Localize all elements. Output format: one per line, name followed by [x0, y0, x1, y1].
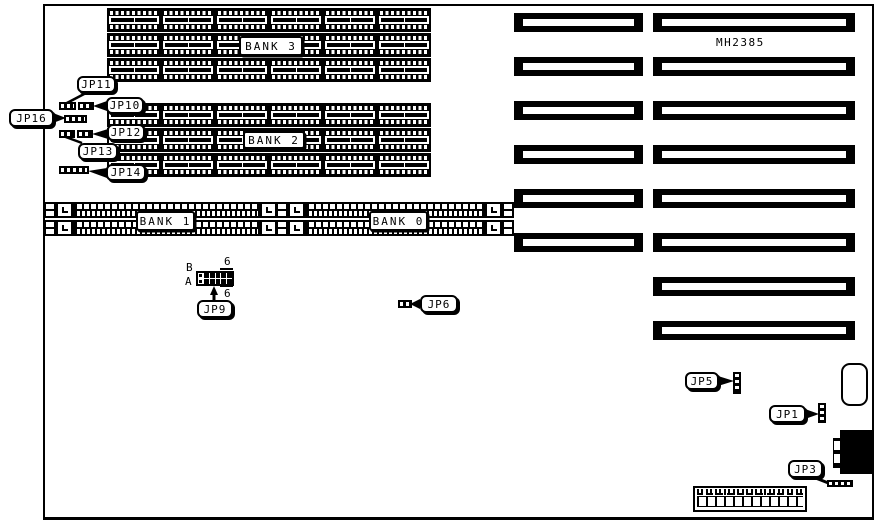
- jp5-jumper-pins: [733, 372, 741, 394]
- jp9-row-a-label: A: [185, 276, 192, 287]
- jp12-callout: JP12: [107, 124, 145, 141]
- bank2-label: BANK 2: [243, 131, 305, 149]
- jp5-callout: JP5: [685, 372, 719, 390]
- jp16-callout: JP16: [9, 109, 54, 127]
- jp11-callout: JP11: [77, 76, 116, 93]
- jp9-pin6-top-label: 6: [224, 256, 231, 267]
- bank1-label: BANK 1: [136, 211, 195, 231]
- jp14-callout: JP14: [106, 164, 146, 181]
- din-notch: [834, 454, 840, 463]
- bank0-label: BANK 0: [369, 211, 428, 231]
- jp11-jumper-pins: [59, 102, 76, 110]
- jp13-jumper-pins: [59, 130, 75, 138]
- jp6-callout: JP6: [420, 295, 458, 313]
- jp9-pin-header: [196, 271, 234, 286]
- jp3-callout: JP3: [788, 460, 823, 478]
- jp14-jumper-pins: [59, 166, 89, 174]
- jp16-jumper-pins: [64, 115, 87, 123]
- jp1-jumper-pins: [818, 403, 826, 423]
- jp3-jumper-pins: [827, 480, 853, 487]
- din-notch: [834, 441, 840, 450]
- jp10-jumper-pins: [78, 102, 94, 110]
- leader-lines: [0, 0, 879, 527]
- jp13-callout: JP13: [78, 143, 118, 160]
- jp10-callout: JP10: [106, 97, 144, 114]
- jp12-jumper-pins: [77, 130, 93, 138]
- bank3-label: BANK 3: [239, 36, 303, 56]
- jp9-pin6-bottom-label: 6: [224, 288, 231, 299]
- jp1-callout: JP1: [769, 405, 806, 423]
- jp9-callout: JP9: [197, 300, 233, 318]
- jp9-row-b-label: B: [186, 262, 193, 273]
- jp6-jumper-pins: [398, 300, 412, 308]
- motherboard-jumper-diagram: B A 6 6 BANK 3 BANK 2 BANK 1 BANK 0 JP11…: [0, 0, 879, 527]
